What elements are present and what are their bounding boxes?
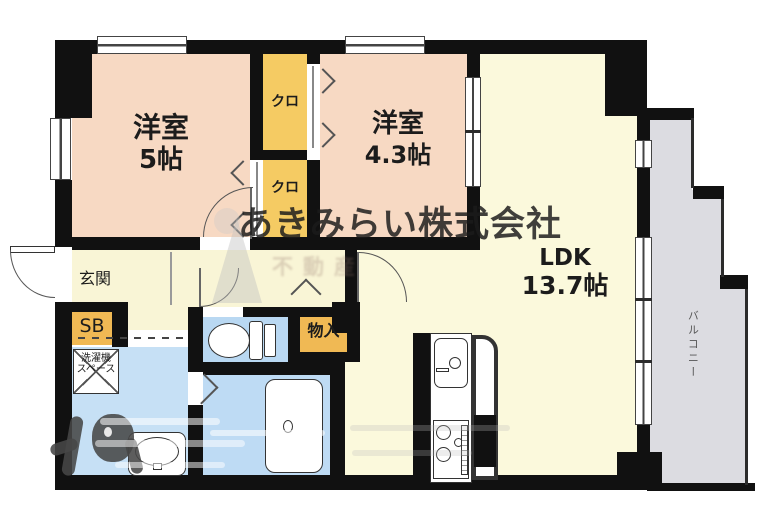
toilet-tank2-icon <box>264 324 276 357</box>
label-storage: 物入 <box>302 322 345 340</box>
window-bedroom1 <box>97 36 187 54</box>
watermark-streak-5 <box>350 425 510 431</box>
wall-bed2-ldk-a <box>467 54 480 77</box>
watermark-subtext: 不動産 <box>272 256 492 280</box>
label-bedroom1-size: 5帖 <box>116 146 206 175</box>
kitchen-faucet-bar-icon <box>436 368 449 372</box>
wall-corner-block-tr <box>605 52 647 116</box>
label-ldk-name: LDK <box>515 246 615 272</box>
watermark-company-text: あきみらい株式会社 <box>238 206 608 245</box>
toilet-bowl-icon <box>208 323 250 358</box>
watermark-streak-3 <box>115 462 225 468</box>
kitchen-faucet-icon <box>449 357 461 369</box>
balcony-door-divider-1 <box>635 298 652 301</box>
wall-balcony-bottom <box>647 483 755 491</box>
room-hall-floor-ext <box>127 302 188 330</box>
wall-balcony-step1 <box>693 186 724 199</box>
wall-closet-upper-top <box>307 54 320 64</box>
toilet-tank-icon <box>249 321 263 360</box>
floor-plan: あきみらい株式会社 不動産 洋室 5帖 洋室 4.3帖 LDK 13.7帖 クロ… <box>0 0 762 526</box>
balcony-edge-3 <box>745 289 748 485</box>
bathtub-icon <box>265 379 323 473</box>
window-ldk-right-small <box>635 140 652 168</box>
watermark-streak-4 <box>210 430 325 436</box>
wall-bottom <box>55 475 662 490</box>
entrance-step-line <box>170 252 172 305</box>
wall-ldk-right-c <box>637 425 650 475</box>
balcony-door-divider-2 <box>635 360 652 363</box>
wall-left-a <box>55 54 72 118</box>
wall-balcony-top <box>647 108 694 120</box>
label-balcony: バルコニー <box>686 300 698 390</box>
toilet-door-opening <box>203 307 243 317</box>
watermark-streak-6 <box>352 450 472 456</box>
label-bedroom2-name: 洋室 <box>352 110 444 139</box>
wall-closet-mid <box>263 150 307 160</box>
label-laundry-line2: スペース <box>70 364 122 375</box>
wall-sb-top <box>72 302 112 312</box>
window-bedroom2 <box>345 36 425 54</box>
wall-bath-right <box>330 375 345 475</box>
balcony-area-1 <box>647 115 692 190</box>
balcony-area-2 <box>647 190 721 275</box>
label-closet-lower: クロ <box>265 181 305 197</box>
balcony-edge-2 <box>721 199 724 277</box>
wall-sb-right <box>112 302 128 347</box>
label-laundry-line1: 洗濯機 <box>70 353 122 364</box>
label-bedroom2-size: 4.3帖 <box>346 142 450 169</box>
watermark-logo-eye <box>104 427 112 437</box>
label-laundry: 洗濯機 スペース <box>70 353 122 375</box>
slidedoor-divider <box>465 130 481 133</box>
label-bedroom1-name: 洋室 <box>116 112 206 143</box>
label-entrance: 玄関 <box>72 270 118 288</box>
window-left-wall <box>50 118 71 180</box>
window-balcony-doors <box>635 237 652 425</box>
wall-toilet-bath <box>188 362 345 375</box>
watermark-blob-shape <box>214 208 240 234</box>
wall-ldk-right-b <box>637 168 650 237</box>
label-ldk-size: 13.7帖 <box>505 272 625 300</box>
balcony-edge-1 <box>691 118 694 188</box>
front-door-opening <box>55 247 72 302</box>
wall-rooms-bottom-a <box>55 237 200 250</box>
wall-balcony-step2 <box>720 275 748 289</box>
washroom-partition-dashes <box>78 337 184 339</box>
watermark-streak-2 <box>95 440 245 447</box>
label-closet-upper: クロ <box>265 95 305 111</box>
wall-storage-bottom <box>298 352 360 362</box>
kitchen-counter-return-solid <box>474 415 496 467</box>
watermark-streak-1 <box>100 418 220 425</box>
front-door-arc <box>10 250 55 298</box>
label-shoebox: SB <box>74 316 110 337</box>
wall-bed1-closet <box>250 54 263 160</box>
